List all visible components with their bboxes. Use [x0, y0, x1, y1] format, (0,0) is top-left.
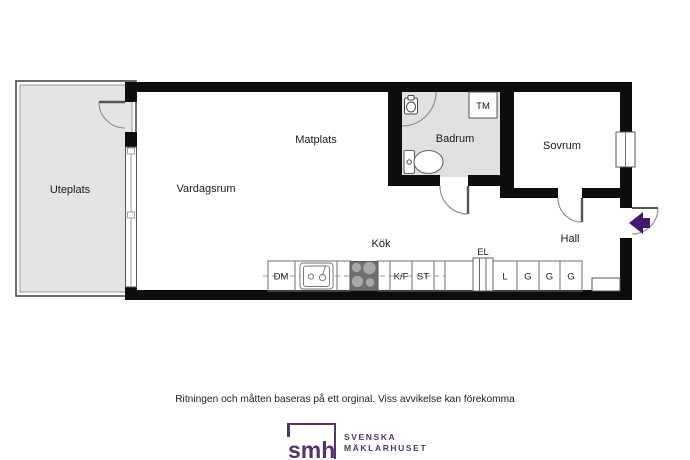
room-label-matplats: Matplats [295, 134, 337, 146]
logo-name-line2: MÄKLARHUSET [344, 443, 427, 454]
label-dm: DM [274, 272, 289, 283]
label-g2: G [546, 272, 553, 283]
logo-name-line1: SVENSKA [344, 432, 427, 443]
room-label-badrum: Badrum [436, 133, 475, 145]
room-label-vardagsrum: Vardagsrum [176, 183, 235, 195]
electrical-cabinet [473, 258, 493, 291]
floor-plan-drawing: Uteplats Vardagsrum Matplats Badrum Sovr… [0, 0, 690, 460]
logo-bracket-tick [287, 425, 290, 437]
sink-icon [300, 263, 333, 289]
room-label-hall: Hall [561, 233, 580, 245]
bathroom-door [440, 186, 468, 214]
label-l: L [502, 272, 507, 283]
label-g3: G [567, 272, 574, 283]
agency-logo: smh SVENSKA MÄKLARHUSET [287, 423, 427, 459]
room-label-kok: Kök [372, 238, 391, 250]
disclaimer-text: Ritningen och måtten baseras på ett orgi… [0, 394, 690, 405]
logo-company-name: SVENSKA MÄKLARHUSET [344, 432, 427, 454]
room-label-uteplats: Uteplats [50, 184, 91, 196]
washbasin-icon [405, 96, 418, 115]
entrance-arrow-icon [629, 212, 650, 234]
label-tm: TM [476, 101, 490, 112]
patio-window [126, 147, 137, 287]
bedroom-door [558, 198, 582, 222]
room-label-sovrum: Sovrum [543, 140, 581, 152]
bedroom-window [616, 132, 635, 167]
floor-plan-canvas: Uteplats Vardagsrum Matplats Badrum Sovr… [0, 0, 690, 460]
logo-smh-text: smh [288, 439, 335, 460]
entry-step [592, 278, 620, 291]
label-kf: K/F [394, 272, 409, 283]
label-g1: G [524, 272, 531, 283]
label-st: ST [417, 272, 429, 283]
toilet-icon [404, 151, 443, 174]
logo-smh-mark: smh [287, 423, 336, 459]
label-el: EL [477, 247, 489, 258]
stove-icon [350, 262, 378, 291]
